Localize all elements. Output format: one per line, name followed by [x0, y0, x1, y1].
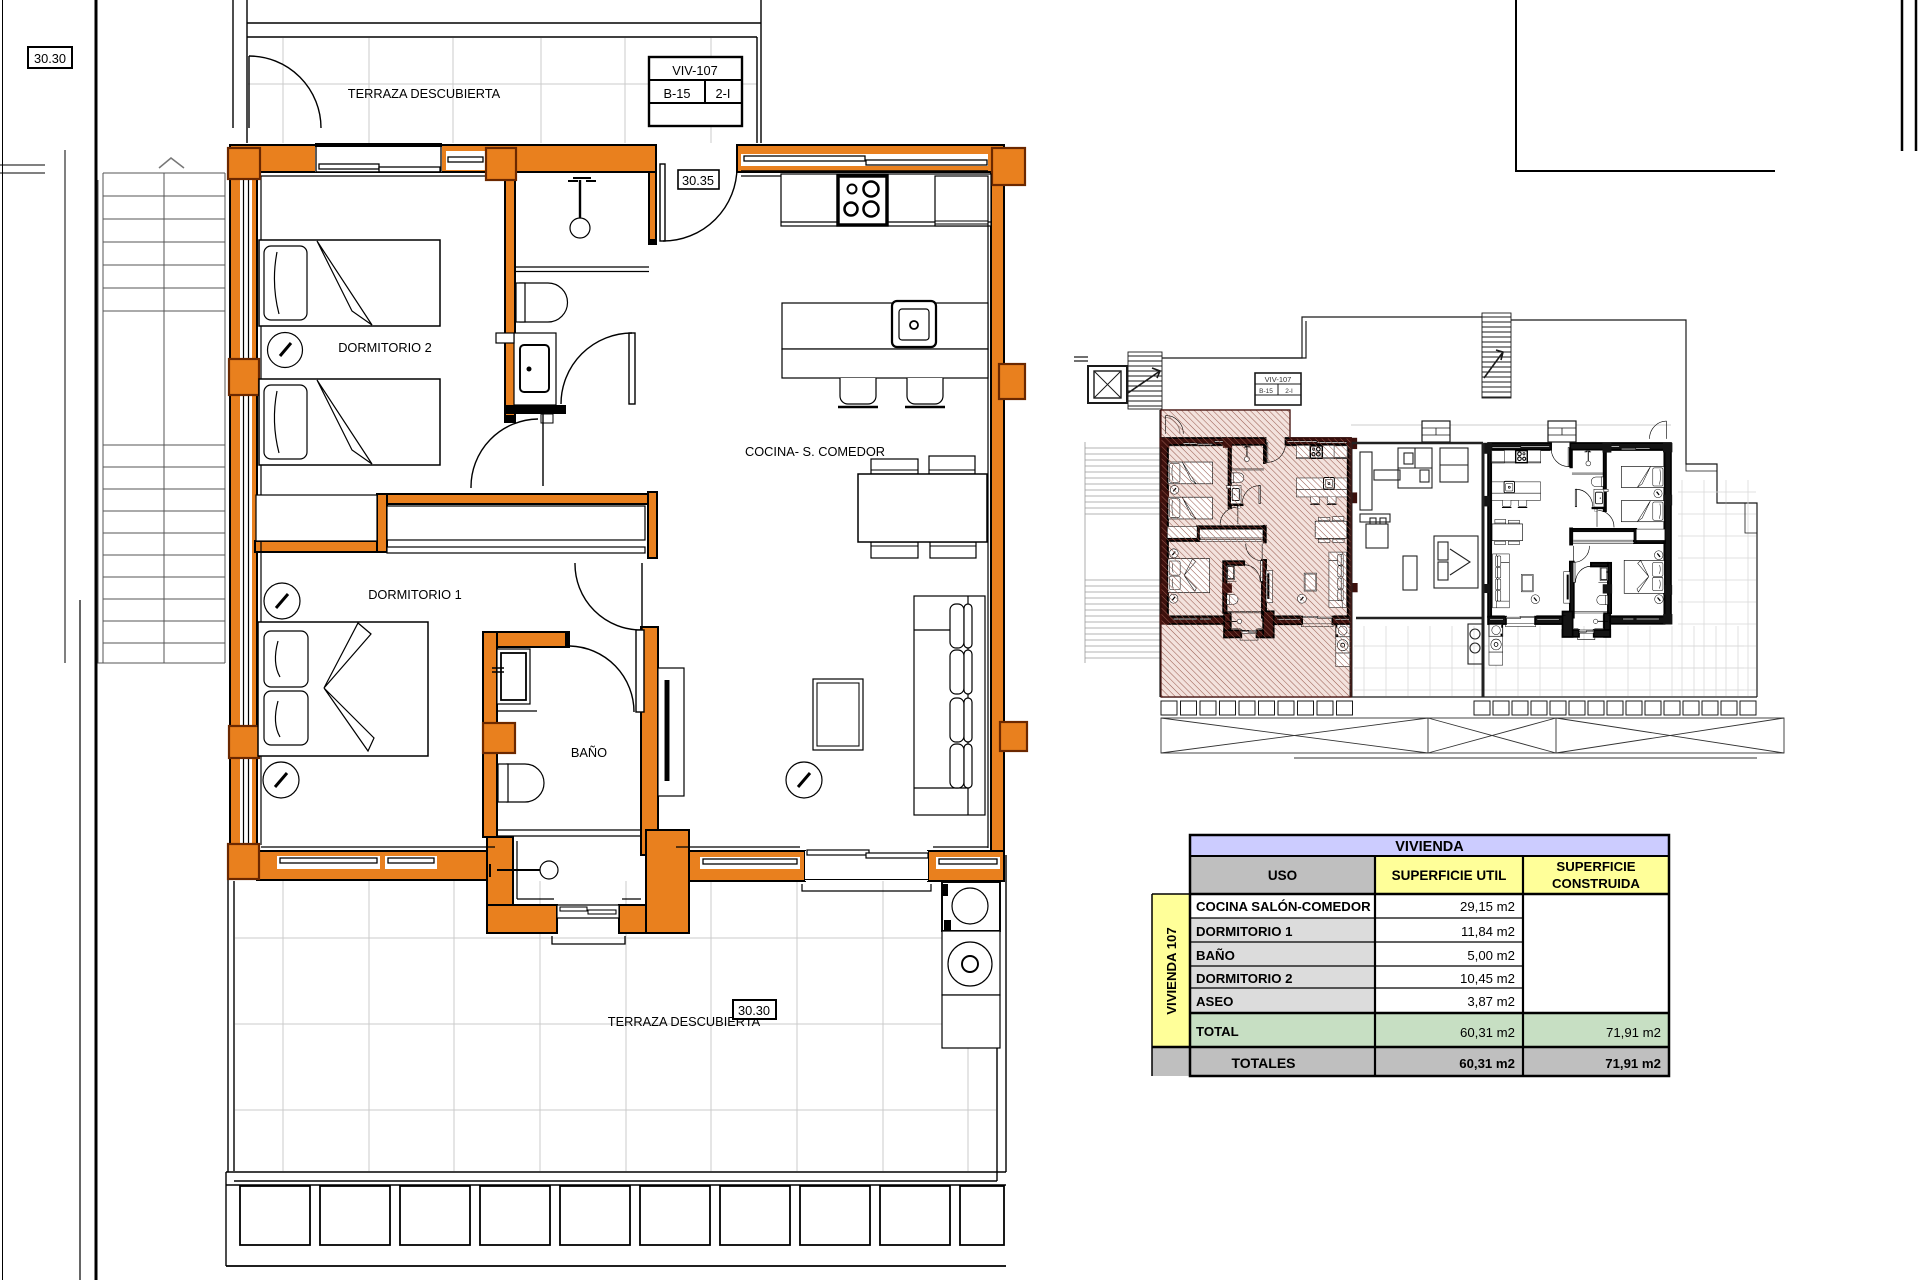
svg-text:VIV-107: VIV-107	[672, 63, 718, 78]
svg-text:30.30: 30.30	[738, 1003, 770, 1018]
svg-text:DORMITORIO 2: DORMITORIO 2	[1196, 971, 1292, 986]
svg-text:29,15 m2: 29,15 m2	[1460, 899, 1515, 914]
svg-text:3,87 m2: 3,87 m2	[1467, 994, 1515, 1009]
svg-text:2-I: 2-I	[1285, 388, 1293, 395]
svg-text:SUPERFICIE: SUPERFICIE	[1556, 859, 1635, 874]
svg-text:DORMITORIO 1: DORMITORIO 1	[1196, 924, 1292, 939]
svg-text:VIV-107: VIV-107	[1265, 375, 1292, 384]
svg-text:2-I: 2-I	[716, 86, 731, 101]
svg-text:SUPERFICIE UTIL: SUPERFICIE UTIL	[1392, 868, 1507, 883]
svg-text:B-15: B-15	[663, 86, 690, 101]
svg-text:30.30: 30.30	[34, 51, 66, 66]
svg-text:30.35: 30.35	[682, 173, 714, 188]
svg-text:BAÑO: BAÑO	[1196, 948, 1235, 963]
svg-text:10,45 m2: 10,45 m2	[1460, 971, 1515, 986]
svg-text:COCINA- S. COMEDOR: COCINA- S. COMEDOR	[745, 444, 885, 459]
svg-text:BAÑO: BAÑO	[571, 745, 607, 760]
svg-text:CONSTRUIDA: CONSTRUIDA	[1552, 876, 1640, 891]
svg-text:VIVIENDA: VIVIENDA	[1395, 839, 1464, 855]
svg-text:DORMITORIO 2: DORMITORIO 2	[338, 340, 432, 355]
svg-text:TOTALES: TOTALES	[1231, 1055, 1295, 1071]
svg-text:71,91 m2: 71,91 m2	[1606, 1025, 1661, 1040]
svg-text:60,31 m2: 60,31 m2	[1460, 1025, 1515, 1040]
svg-text:DORMITORIO 1: DORMITORIO 1	[368, 587, 462, 602]
svg-text:COCINA SALÓN-COMEDOR: COCINA SALÓN-COMEDOR	[1196, 899, 1371, 914]
svg-text:60,31 m2: 60,31 m2	[1459, 1056, 1515, 1071]
svg-text:TOTAL: TOTAL	[1196, 1024, 1239, 1039]
svg-text:VIVIENDA 107: VIVIENDA 107	[1164, 927, 1179, 1014]
svg-text:11,84 m2: 11,84 m2	[1461, 924, 1515, 939]
svg-text:USO: USO	[1268, 868, 1297, 883]
svg-text:5,00 m2: 5,00 m2	[1467, 948, 1515, 963]
svg-text:ASEO: ASEO	[1196, 994, 1233, 1009]
svg-text:TERRAZA DESCUBIERTA: TERRAZA DESCUBIERTA	[348, 86, 501, 101]
svg-text:B-15: B-15	[1259, 388, 1273, 395]
svg-text:71,91 m2: 71,91 m2	[1605, 1056, 1661, 1071]
